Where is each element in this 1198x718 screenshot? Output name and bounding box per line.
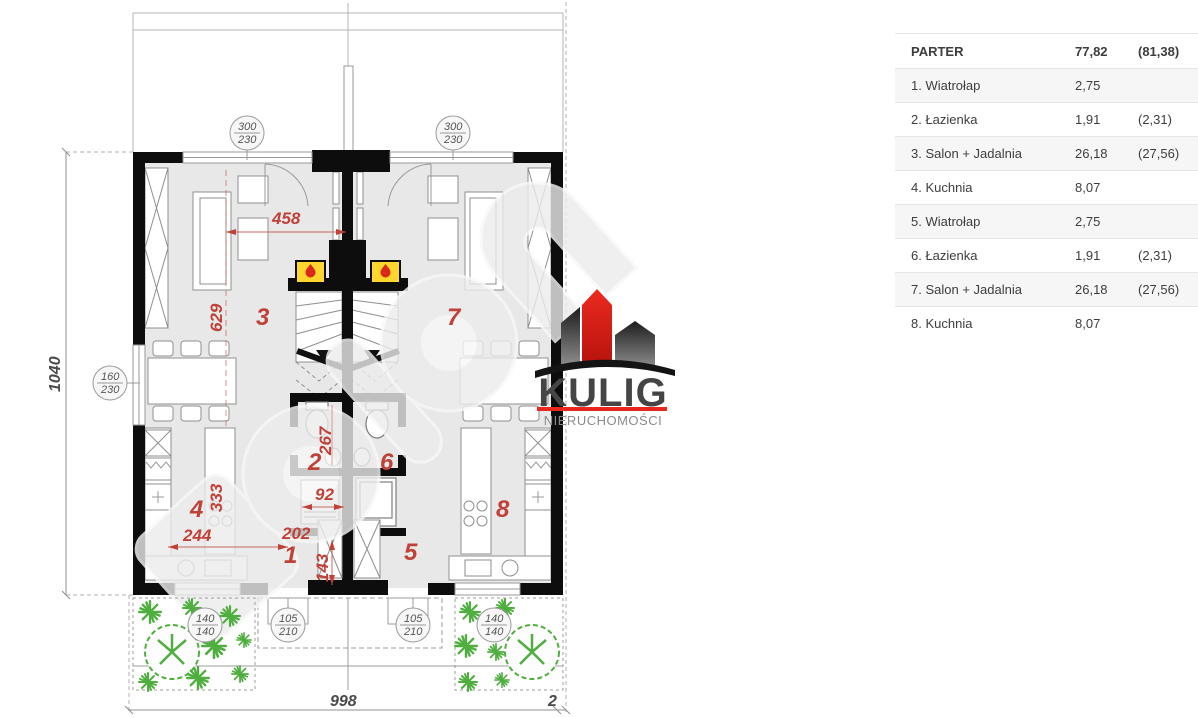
planting-right [455, 598, 563, 691]
table-row: 7. Salon + Jadalnia 26,18 (27,56) [895, 272, 1198, 306]
fireplace-left [296, 261, 325, 283]
svg-text:300: 300 [238, 121, 257, 133]
room-name: 8. Kuchnia [911, 316, 1075, 331]
table-row: 4. Kuchnia 8,07 [895, 170, 1198, 204]
window-label-140-140-right: 140 140 [477, 608, 511, 642]
room-area: 2,75 [1075, 214, 1138, 229]
floor-area-total-alt: (81,38) [1138, 44, 1194, 59]
kulig-logo-subtitle: NIERUCHOMOŚCI [533, 413, 673, 428]
svg-text:210: 210 [403, 626, 423, 638]
room-area: 26,18 [1075, 282, 1138, 297]
dim-2: 2 [547, 693, 557, 710]
kulig-logo-buildings-icon [533, 283, 683, 379]
room-number-1: 1 [284, 542, 297, 569]
room-area: 26,18 [1075, 146, 1138, 161]
svg-text:230: 230 [237, 134, 257, 146]
svg-text:105: 105 [404, 613, 423, 625]
dim-92: 92 [315, 485, 334, 504]
dim-244: 244 [182, 526, 212, 545]
dim-458: 458 [271, 209, 301, 228]
svg-text:230: 230 [443, 134, 463, 146]
dim-998: 998 [330, 693, 357, 710]
svg-text:230: 230 [100, 384, 120, 396]
kulig-logo-red-underline [537, 407, 667, 411]
room-area: 1,91 [1075, 248, 1138, 263]
room-area-alt: (27,56) [1138, 282, 1194, 297]
svg-text:140: 140 [485, 613, 504, 625]
svg-text:210: 210 [278, 626, 298, 638]
fireplace-right [371, 261, 400, 283]
table-row: 2. Łazienka 1,91 (2,31) [895, 102, 1198, 136]
svg-text:140: 140 [485, 626, 504, 638]
table-row: 1. Wiatrołap 2,75 [895, 68, 1198, 102]
floor-name: PARTER [911, 44, 1075, 59]
room-name: 4. Kuchnia [911, 180, 1075, 195]
svg-text:140: 140 [196, 626, 215, 638]
room-number-7: 7 [447, 304, 462, 331]
roof-outline [133, 3, 563, 152]
room-name: 3. Salon + Jadalnia [911, 146, 1075, 161]
svg-text:105: 105 [279, 613, 298, 625]
room-name: 7. Salon + Jadalnia [911, 282, 1075, 297]
room-name: 5. Wiatrołap [911, 214, 1075, 229]
window-label-140-140-left: 140 140 [188, 608, 222, 642]
dim-1040: 1040 [47, 356, 64, 392]
room-number-3: 3 [256, 304, 270, 331]
room-area: 8,07 [1075, 316, 1138, 331]
room-number-6: 6 [380, 449, 394, 476]
dim-333: 333 [207, 483, 226, 512]
room-name: 2. Łazienka [911, 112, 1075, 127]
svg-text:160: 160 [101, 371, 120, 383]
kulig-logo: KULIG NIERUCHOMOŚCI [533, 283, 683, 435]
room-area-alt: (2,31) [1138, 112, 1194, 127]
table-header-row: PARTER 77,82 (81,38) [895, 33, 1198, 68]
room-number-4: 4 [189, 496, 203, 523]
room-number-8: 8 [496, 496, 510, 523]
room-area-alt: (27,56) [1138, 146, 1194, 161]
room-area: 8,07 [1075, 180, 1138, 195]
area-summary-table: PARTER 77,82 (81,38) 1. Wiatrołap 2,75 2… [895, 33, 1198, 340]
dim-629: 629 [207, 303, 226, 332]
room-number-2: 2 [307, 449, 322, 476]
dim-202: 202 [281, 524, 311, 543]
room-name: 1. Wiatrołap [911, 78, 1075, 93]
floor-area-total: 77,82 [1075, 44, 1138, 59]
dim-143: 143 [313, 553, 332, 582]
table-row: 6. Łazienka 1,91 (2,31) [895, 238, 1198, 272]
floorplan-page: 458 629 267 92 333 244 202 143 3 7 2 6 4… [0, 0, 1198, 718]
table-row: 8. Kuchnia 8,07 [895, 306, 1198, 340]
svg-text:140: 140 [196, 613, 215, 625]
table-row: 3. Salon + Jadalnia 26,18 (27,56) [895, 136, 1198, 170]
room-number-5: 5 [404, 539, 418, 566]
room-name: 6. Łazienka [911, 248, 1075, 263]
room-area-alt: (2,31) [1138, 248, 1194, 263]
room-area: 2,75 [1075, 78, 1138, 93]
room-area: 1,91 [1075, 112, 1138, 127]
svg-text:300: 300 [444, 121, 463, 133]
table-row: 5. Wiatrołap 2,75 [895, 204, 1198, 238]
